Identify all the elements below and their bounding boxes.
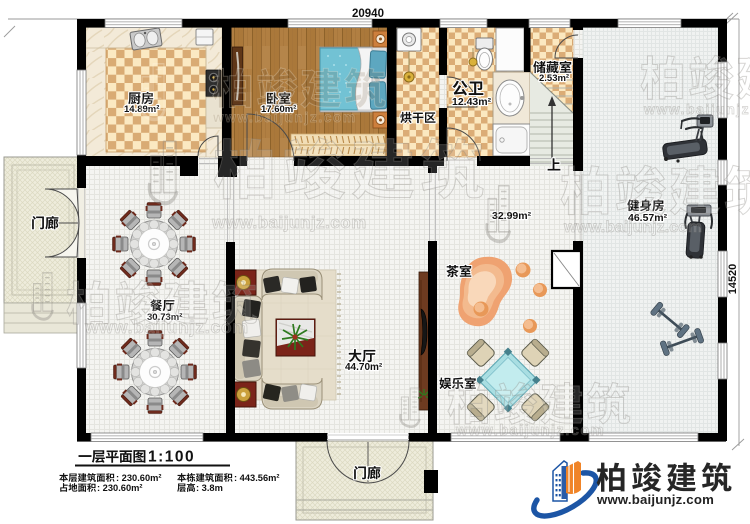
svg-text:1:100: 1:100	[148, 449, 195, 466]
svg-text:44.70m²: 44.70m²	[345, 362, 383, 373]
svg-text:www.baijunjz.com: www.baijunjz.com	[596, 492, 714, 507]
svg-text:www.baijunjz.com: www.baijunjz.com	[455, 423, 605, 439]
svg-text:: 230.60m²: : 230.60m²	[116, 473, 161, 483]
svg-text:www.baijunjz.com: www.baijunjz.com	[212, 110, 357, 125]
svg-text:www.baijunjz.com: www.baijunjz.com	[643, 101, 750, 117]
svg-text:32.99m²: 32.99m²	[492, 210, 532, 222]
svg-text:www.baijunjz.com: www.baijunjz.com	[84, 317, 249, 337]
svg-text:20940: 20940	[352, 8, 384, 20]
svg-text:www.baijunjz.com: www.baijunjz.com	[563, 219, 702, 236]
svg-text:12.43m²: 12.43m²	[452, 96, 492, 108]
svg-text:: 443.56m²: : 443.56m²	[234, 473, 279, 483]
svg-text:www.baijunjz.com: www.baijunjz.com	[211, 213, 367, 232]
svg-text:2.53m²: 2.53m²	[539, 73, 569, 84]
svg-text:14520: 14520	[727, 264, 739, 295]
svg-text:: 3.8m: : 3.8m	[196, 483, 223, 493]
svg-text:: 230.60m²: : 230.60m²	[97, 483, 142, 493]
